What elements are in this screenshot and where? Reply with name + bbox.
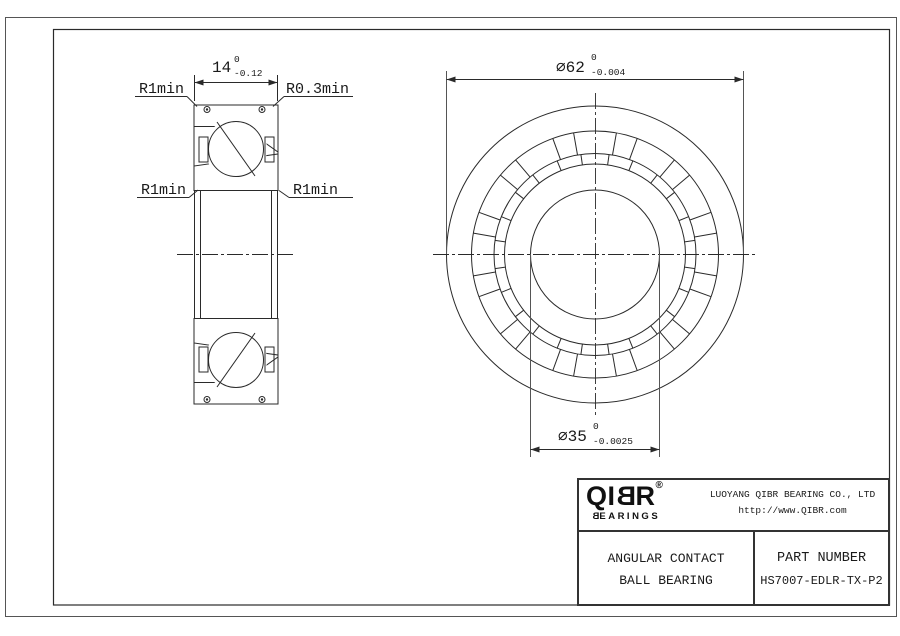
seal-rivet-dot xyxy=(206,398,208,400)
cage-pocket-line xyxy=(557,161,561,171)
seal-rivet-dot xyxy=(206,108,208,110)
cage-pocket-line xyxy=(516,160,531,177)
seal-rivet-dot xyxy=(261,108,263,110)
cage-pocket-line xyxy=(501,217,511,221)
width-dim-tol-lower: -0.12 xyxy=(234,68,263,79)
cage-pocket-line xyxy=(574,354,578,376)
tagline-mirrored-b: B xyxy=(590,511,599,522)
cage-pocket-line xyxy=(630,138,638,159)
cage-pocket-line xyxy=(516,332,531,349)
cage-pocket-line xyxy=(690,289,711,297)
bore-dim-tol-upper: 0 xyxy=(593,421,599,432)
cage-pocket-line xyxy=(666,310,674,317)
registered-trademark-icon: ® xyxy=(656,480,664,491)
cage-pocket-line xyxy=(679,217,689,221)
cage-pocket-line xyxy=(685,240,695,242)
arrow-left xyxy=(447,77,456,83)
cage-pocket-line xyxy=(553,349,561,370)
cage-pocket-line xyxy=(473,272,495,276)
section-bottom-half xyxy=(194,319,278,405)
arrow-right xyxy=(651,447,660,453)
cage-pocket-line xyxy=(660,160,675,177)
leader-line xyxy=(187,97,197,107)
brand-tagline: BEARINGS xyxy=(590,511,697,522)
arrow-left xyxy=(195,80,204,86)
cage-pocket-line xyxy=(651,175,658,183)
drawing-sheet: 14 0 -0.12 R1min R0.3min R1min R1min xyxy=(0,0,900,636)
cage-pocket-line xyxy=(672,319,689,334)
od-dim-tol-lower: -0.004 xyxy=(591,67,626,78)
arrow-right xyxy=(735,77,744,83)
cage-pocket-line xyxy=(574,133,578,155)
width-dim-value: 14 xyxy=(212,59,231,77)
product-type-cell: ANGULAR CONTACT BALL BEARING xyxy=(579,532,755,606)
part-number-cell: PART NUMBER HS7007-EDLR-TX-P2 xyxy=(755,532,888,606)
cage-pocket-line xyxy=(608,155,610,165)
title-block-header-row: QIBR® BEARINGS LUOYANG QIBR BEARING CO.,… xyxy=(579,480,888,532)
leader-line xyxy=(279,191,289,198)
brand-suffix: R xyxy=(636,481,656,511)
brand-wordmark: QIBR® xyxy=(586,483,697,510)
company-info: LUOYANG QIBR BEARING CO., LTD http://www… xyxy=(697,480,888,530)
cage-pocket-line xyxy=(515,192,523,199)
cage-pocket-line xyxy=(533,175,540,183)
bore-dim-value: ⌀35 xyxy=(558,428,587,446)
cage-pocket-line xyxy=(695,272,717,276)
brand-mirrored-b: B xyxy=(616,483,636,510)
cage-pocket-line xyxy=(630,349,638,370)
product-type-line1: ANGULAR CONTACT xyxy=(607,551,724,566)
seal-rivet-dot xyxy=(261,398,263,400)
width-dim-tol-upper: 0 xyxy=(234,54,240,65)
cage-pocket-line xyxy=(651,326,658,334)
company-website: http://www.QIBR.com xyxy=(697,503,888,519)
cage-pocket-line xyxy=(629,338,633,348)
front-view: ⌀62 0 -0.004 ⌀35 0 -0.0025 xyxy=(433,52,757,457)
cage-pocket-line xyxy=(581,155,583,165)
cage-pocket-line xyxy=(533,326,540,334)
cage-pocket-line xyxy=(500,319,517,334)
label-r03min-top-right: R0.3min xyxy=(286,81,349,98)
tagline-rest: EARINGS xyxy=(599,511,660,522)
cage-pocket-line xyxy=(495,267,505,269)
od-dim-value: ⌀62 xyxy=(556,59,585,77)
cage-pocket-line xyxy=(690,212,711,220)
bore-dim-tol-lower: -0.0025 xyxy=(593,436,633,447)
cage-pocket-line xyxy=(553,138,561,159)
cage-pocket-line xyxy=(495,240,505,242)
cage-pocket-line xyxy=(608,344,610,354)
cage-pocket-line xyxy=(501,288,511,292)
label-r1min-top-left: R1min xyxy=(139,81,184,98)
cage-pocket-line xyxy=(613,133,617,155)
cage-pocket-line xyxy=(685,267,695,269)
cage-pocket-line xyxy=(500,175,517,190)
title-block: QIBR® BEARINGS LUOYANG QIBR BEARING CO.,… xyxy=(577,478,890,606)
width-dimension: 14 0 -0.12 xyxy=(195,54,278,101)
cage-pocket-line xyxy=(613,354,617,376)
cage-pocket-line xyxy=(473,233,495,237)
brand-prefix: QI xyxy=(586,481,616,511)
section-view: 14 0 -0.12 R1min R0.3min R1min R1min xyxy=(135,54,353,404)
cage-pocket-line xyxy=(479,289,500,297)
leader-line xyxy=(189,190,198,198)
section-top-half xyxy=(194,105,278,191)
title-block-bottom-row: ANGULAR CONTACT BALL BEARING PART NUMBER… xyxy=(579,532,888,606)
label-r1min-mid-right: R1min xyxy=(293,182,338,199)
arrow-right xyxy=(269,80,278,86)
qibr-logo: QIBR® BEARINGS xyxy=(579,480,697,530)
cage-pocket-line xyxy=(666,192,674,199)
label-r1min-mid-left: R1min xyxy=(141,182,186,199)
product-type-line2: BALL BEARING xyxy=(619,573,713,588)
cage-pocket-line xyxy=(695,233,717,237)
company-name: LUOYANG QIBR BEARING CO., LTD xyxy=(697,487,888,503)
part-number-label: PART NUMBER xyxy=(777,551,866,566)
cage-pocket-line xyxy=(479,212,500,220)
cage-pocket-line xyxy=(672,175,689,190)
cage-pocket-line xyxy=(660,332,675,349)
part-number-value: HS7007-EDLR-TX-P2 xyxy=(760,574,882,588)
cage-pocket-line xyxy=(515,310,523,317)
od-dim-tol-upper: 0 xyxy=(591,52,597,63)
cage-pocket-line xyxy=(679,288,689,292)
cage-pocket-line xyxy=(629,161,633,171)
cage-pocket-line xyxy=(581,344,583,354)
arrow-left xyxy=(531,447,540,453)
cage-pocket-line xyxy=(557,338,561,348)
